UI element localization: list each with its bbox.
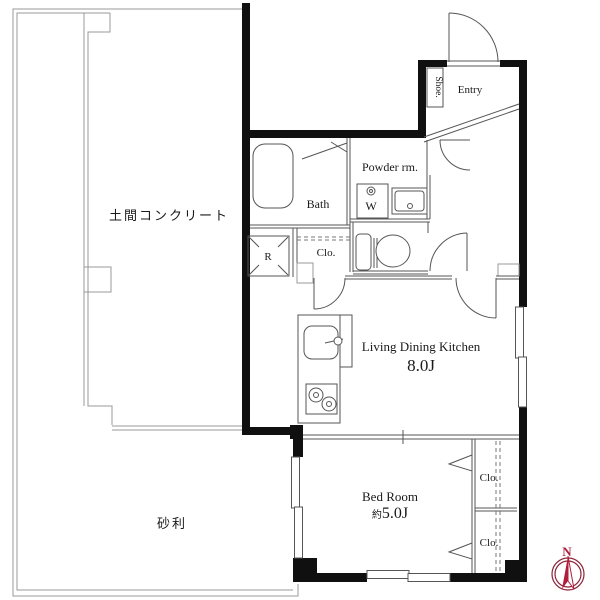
- wall-corner-se: [505, 560, 527, 582]
- bath-bottom-wall: [250, 225, 350, 228]
- bedroom-bottom-window-sash-left: [367, 571, 409, 579]
- entry-door-arc: [449, 13, 498, 62]
- closet-pole-lines: [496, 441, 500, 571]
- toilet-door-arc: [430, 233, 467, 271]
- bath-door: [302, 142, 347, 159]
- hall-ldk-wall: [345, 276, 519, 279]
- kitchen-faucet: [334, 337, 342, 345]
- floor-plan-canvas: 土間コンクリート 砂利 Entry Shoe. Bath Powder rm. …: [0, 0, 600, 600]
- closet-upper-label: Clo.: [480, 472, 499, 484]
- gravel-label: 砂利: [157, 516, 187, 531]
- bedroom-bottom-window-sash-right: [408, 574, 450, 582]
- hall-duct: [498, 264, 519, 276]
- bedroom-size-prefix: 約: [372, 508, 382, 521]
- bath-label: Bath: [307, 197, 330, 211]
- bathtub: [253, 144, 293, 208]
- entry-step-line: [424, 104, 519, 142]
- bedroom-size-label: 約5.0J: [372, 505, 408, 522]
- wall-entry-left: [418, 60, 426, 138]
- entry-hall: [424, 68, 519, 276]
- doma-label: 土間コンクリート: [109, 208, 229, 223]
- bedroom-left-window-sash-top: [292, 457, 300, 508]
- closet-divider: [475, 508, 517, 511]
- ldk-bedroom-wall: [303, 435, 519, 439]
- toilet-room: [350, 222, 467, 274]
- hall-closet-column: [297, 263, 313, 283]
- powder-label: Powder rm.: [362, 160, 418, 174]
- bedroom-left-window-sash-bottom: [295, 507, 303, 558]
- closet-lower-label: Clo.: [480, 537, 499, 549]
- toilet-bowl: [376, 235, 410, 267]
- shoe-label: Shoe.: [433, 76, 443, 97]
- bedroom-size-value: 5.0J: [382, 505, 408, 522]
- toilet-left-wall: [350, 222, 353, 272]
- labels: 土間コンクリート 砂利 Entry Shoe. Bath Powder rm. …: [109, 76, 499, 549]
- ldk-door-left-arc: [314, 278, 345, 309]
- wall-left: [242, 3, 250, 435]
- ldk-window-sash-bottom: [519, 357, 527, 407]
- doma-gravel-border: [112, 426, 242, 430]
- entry-door: [447, 13, 500, 66]
- ldk-size-label: 8.0J: [407, 356, 435, 375]
- powder-bottom-wall: [350, 219, 430, 222]
- toilet-tank: [356, 234, 371, 270]
- powder-right-wall: [427, 140, 430, 219]
- entry-label: Entry: [458, 84, 483, 96]
- hall-closet-label: Clo.: [317, 247, 336, 259]
- hall-ldk-partition: [314, 276, 519, 318]
- wall-right-upper: [519, 60, 527, 307]
- closet-lower-door: [449, 543, 472, 559]
- closet-upper-door: [449, 455, 472, 471]
- kitchen-sink: [304, 326, 338, 359]
- site-boundary-outer: [13, 9, 298, 596]
- wall-corner-sw: [293, 558, 317, 582]
- wall-right-lower: [519, 407, 527, 582]
- powder-door-arc: [440, 140, 470, 170]
- bath-right-wall: [347, 138, 350, 225]
- vanity-sink: [392, 188, 427, 214]
- ldk-window-sash-top: [516, 307, 524, 358]
- wall-bottom-left: [317, 573, 367, 582]
- compass: N: [552, 544, 584, 590]
- hall-closet-pole: [297, 237, 350, 240]
- entry-door-sill: [447, 61, 500, 66]
- ldk-label: Living Dining Kitchen: [362, 339, 481, 354]
- wall-entry-top-left: [418, 60, 447, 67]
- site-boundary: [13, 9, 298, 596]
- site-boundary-inner: [17, 13, 293, 590]
- floor-plan: 土間コンクリート 砂利 Entry Shoe. Bath Powder rm. …: [0, 0, 600, 600]
- wall-bath-top: [242, 130, 426, 138]
- toilet-bottom-wall: [353, 271, 428, 274]
- ldk-door-right-arc: [456, 278, 496, 318]
- bedroom-label: Bed Room: [362, 489, 418, 504]
- washer-label: W: [365, 199, 377, 213]
- kitchen: [298, 315, 352, 423]
- bath-room: [250, 138, 350, 228]
- compass-north-label: N: [562, 544, 572, 559]
- refrigerator-label: R: [264, 251, 272, 263]
- wall-ldk-sw-corner: [290, 425, 303, 439]
- wall-bottom-right: [450, 573, 505, 582]
